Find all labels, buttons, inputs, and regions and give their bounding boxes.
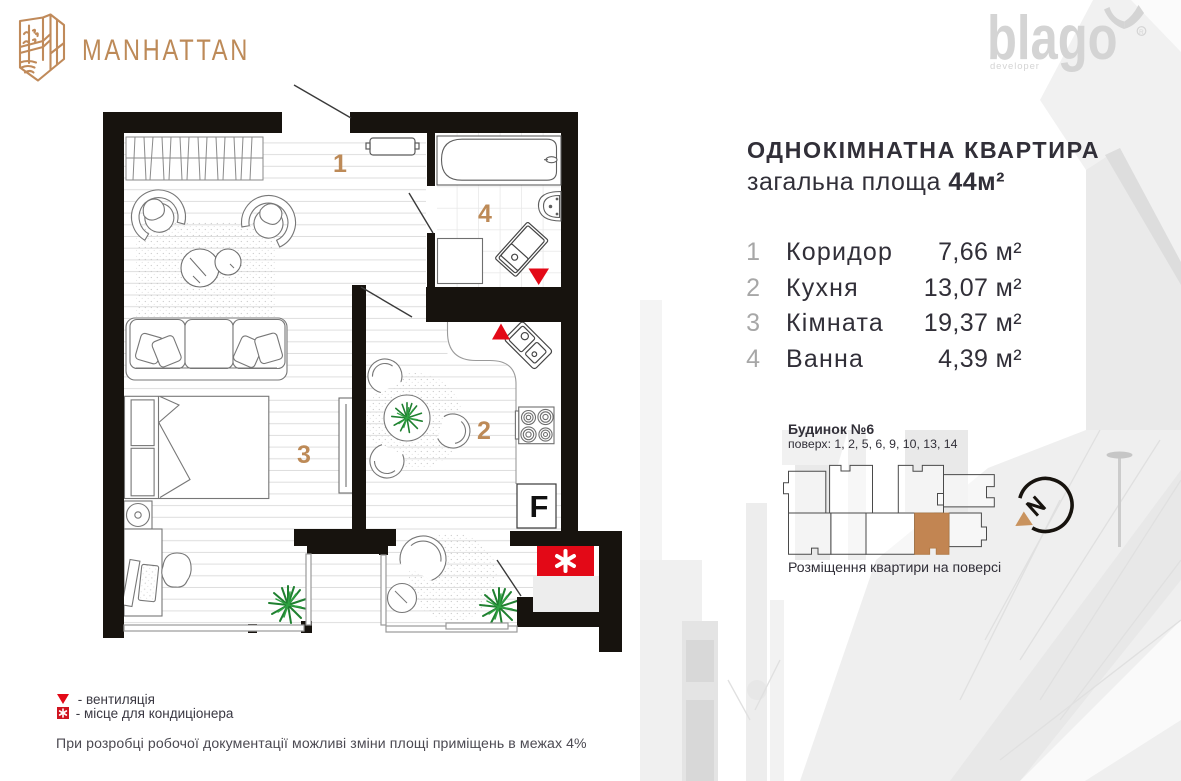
svg-text:1: 1 [333, 150, 347, 178]
svg-text:F: F [530, 489, 549, 524]
svg-text:2: 2 [477, 417, 491, 445]
svg-text:developer: developer [990, 61, 1040, 72]
svg-text:4: 4 [478, 200, 492, 228]
svg-text:3: 3 [297, 441, 311, 469]
svg-text:R: R [1139, 29, 1144, 36]
